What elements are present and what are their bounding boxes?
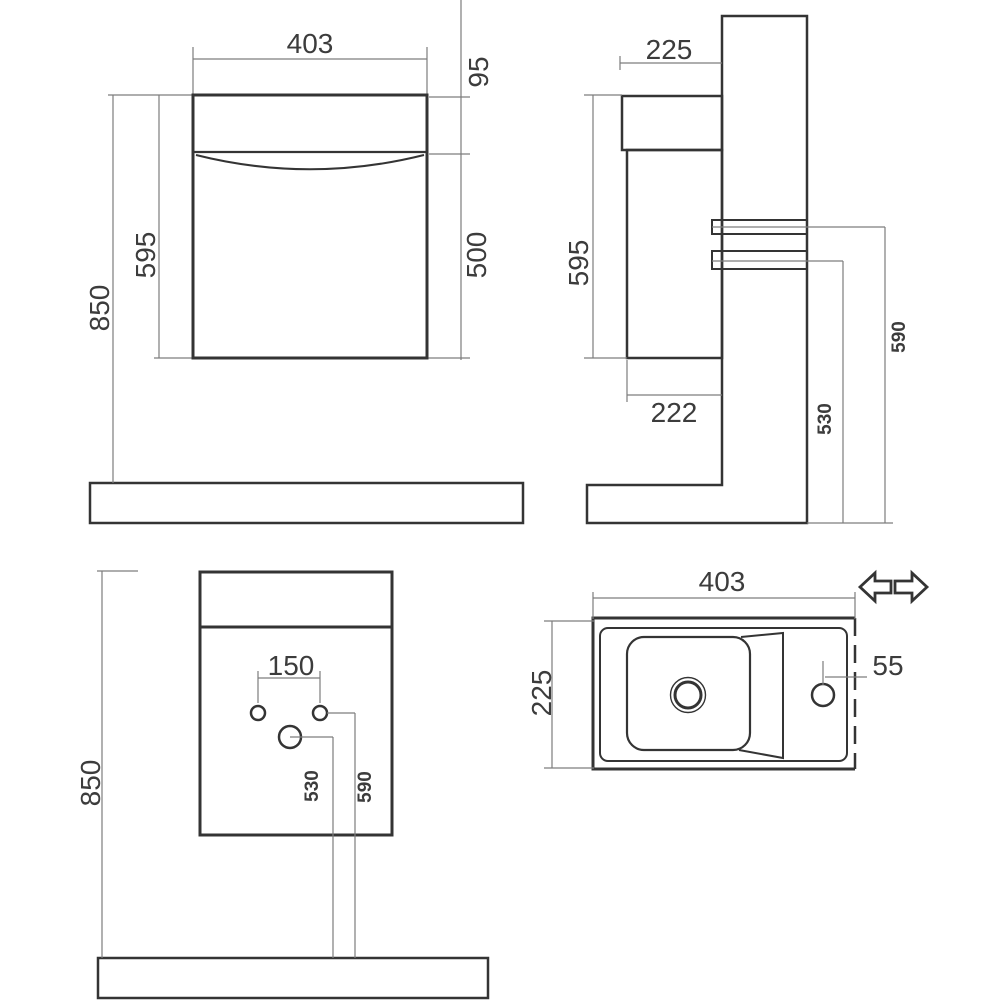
dim-label-body-depth: 222 bbox=[651, 397, 698, 428]
dim-lines-530-590 bbox=[807, 227, 893, 523]
cabinet-front-outline bbox=[193, 95, 427, 358]
fixing-hole-right bbox=[313, 706, 327, 720]
dim-label-plan-depth: 225 bbox=[526, 670, 557, 717]
dim-line-95-500 bbox=[429, 0, 470, 360]
drawing-canvas: 403 95 500 595 850 225 595 222 530 590 bbox=[0, 0, 1000, 1000]
side-view: 225 595 222 530 590 bbox=[563, 16, 910, 523]
dim-label-tap-offset: 55 bbox=[872, 650, 903, 681]
floor-section bbox=[90, 483, 523, 523]
front-view: 403 95 500 595 850 bbox=[84, 0, 523, 523]
dim-label-depth: 225 bbox=[646, 34, 693, 65]
plan-view: 403 225 55 bbox=[526, 566, 927, 769]
lower-fixing-bracket bbox=[712, 251, 807, 269]
dim-label-front-width: 403 bbox=[287, 28, 334, 59]
mounting-view: 850 150 530 590 bbox=[75, 571, 488, 998]
dim-label-door-height: 500 bbox=[461, 232, 492, 279]
arrow-left-icon bbox=[860, 573, 891, 601]
reversible-arrows-icon bbox=[860, 573, 927, 601]
dim-line-222 bbox=[627, 360, 722, 402]
dim-label-drawer-height: 95 bbox=[463, 56, 494, 87]
dim-label-lower-fixing: 530 bbox=[815, 403, 836, 435]
dim-line-595-side bbox=[584, 95, 627, 358]
fixing-hole-left bbox=[251, 706, 265, 720]
dim-label-cabinet-height: 595 bbox=[130, 232, 161, 279]
dim-label-plan-width: 403 bbox=[699, 566, 746, 597]
cabinet-body-profile bbox=[627, 150, 722, 358]
dim-label-upper-fixing: 590 bbox=[889, 321, 910, 353]
cabinet-top-profile bbox=[622, 96, 722, 150]
bracket-leader-lines bbox=[712, 227, 885, 261]
dim-label-hole-spacing: 150 bbox=[268, 650, 315, 681]
drawer-curved-edge bbox=[196, 155, 424, 169]
arrow-right-icon bbox=[895, 573, 927, 601]
dim-label-height-from-floor: 850 bbox=[75, 760, 106, 807]
dim-label-hole-height: 590 bbox=[355, 771, 376, 803]
vanity-dimension-drawing: 403 95 500 595 850 225 595 222 530 590 bbox=[0, 0, 1000, 1000]
dim-label-height-from-floor: 850 bbox=[84, 285, 115, 332]
dim-label-drain-height: 530 bbox=[302, 770, 323, 802]
dim-label-side-height: 595 bbox=[563, 240, 594, 287]
floor-section bbox=[98, 958, 488, 998]
